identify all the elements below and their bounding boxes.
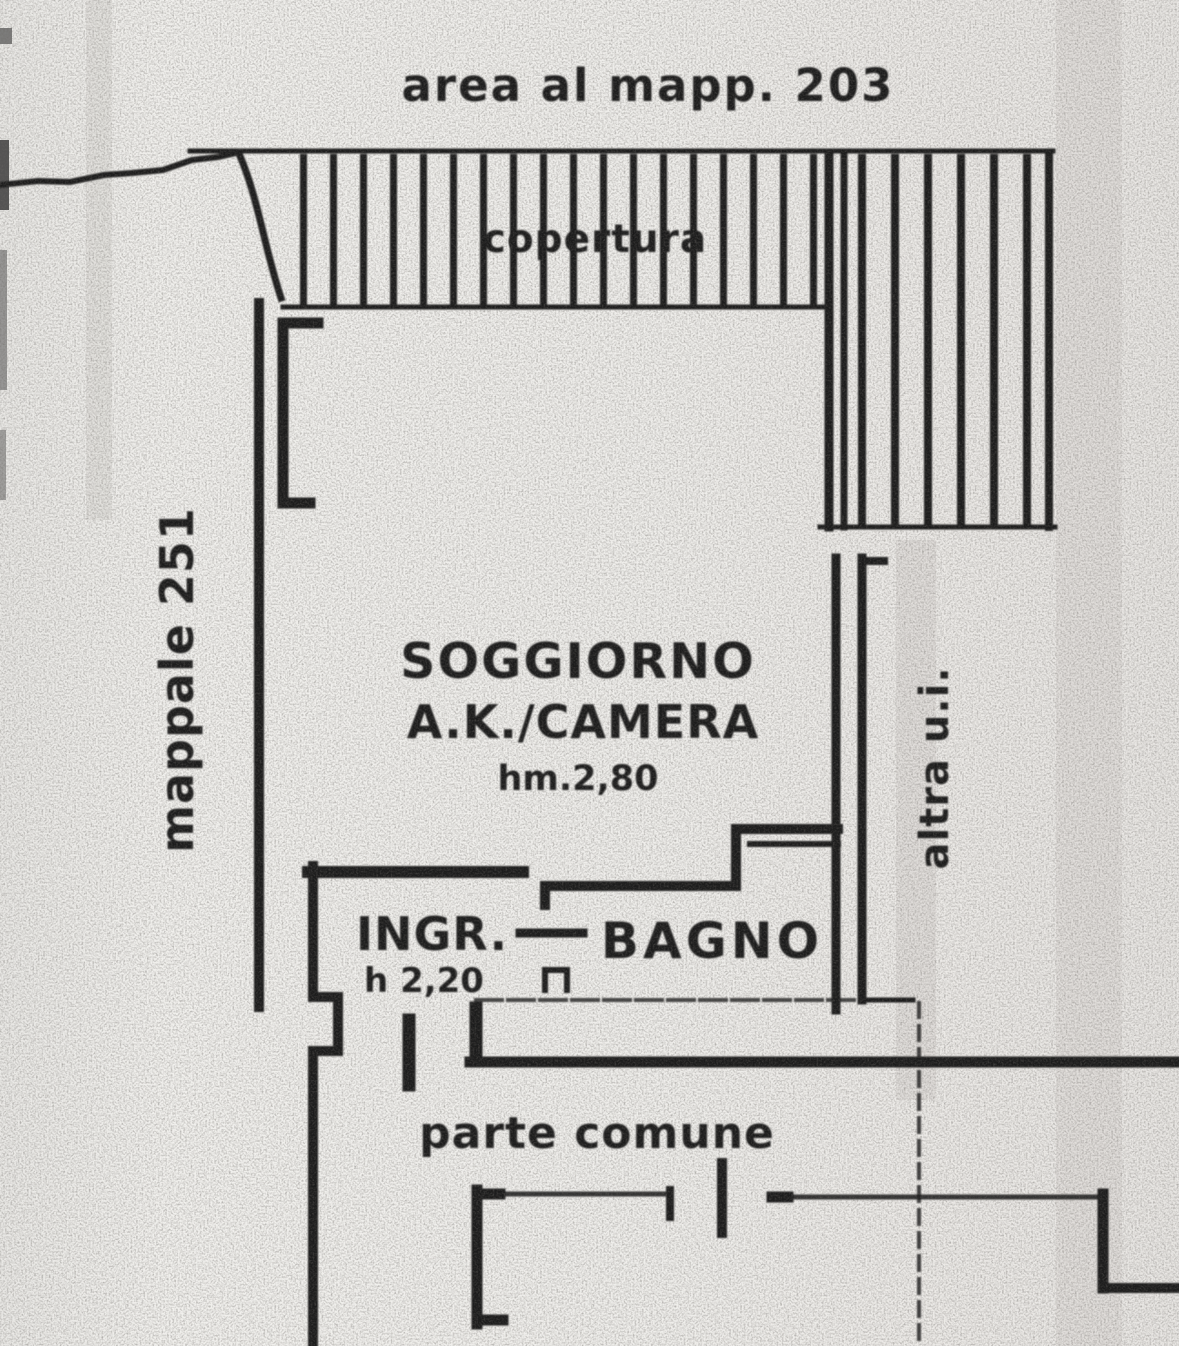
paper-grain-overlay: [0, 0, 1179, 1346]
scanned-floorplan-page: area al mapp. 203 copertura mappale 251 …: [0, 0, 1179, 1346]
floorplan-svg: area al mapp. 203 copertura mappale 251 …: [0, 0, 1179, 1346]
